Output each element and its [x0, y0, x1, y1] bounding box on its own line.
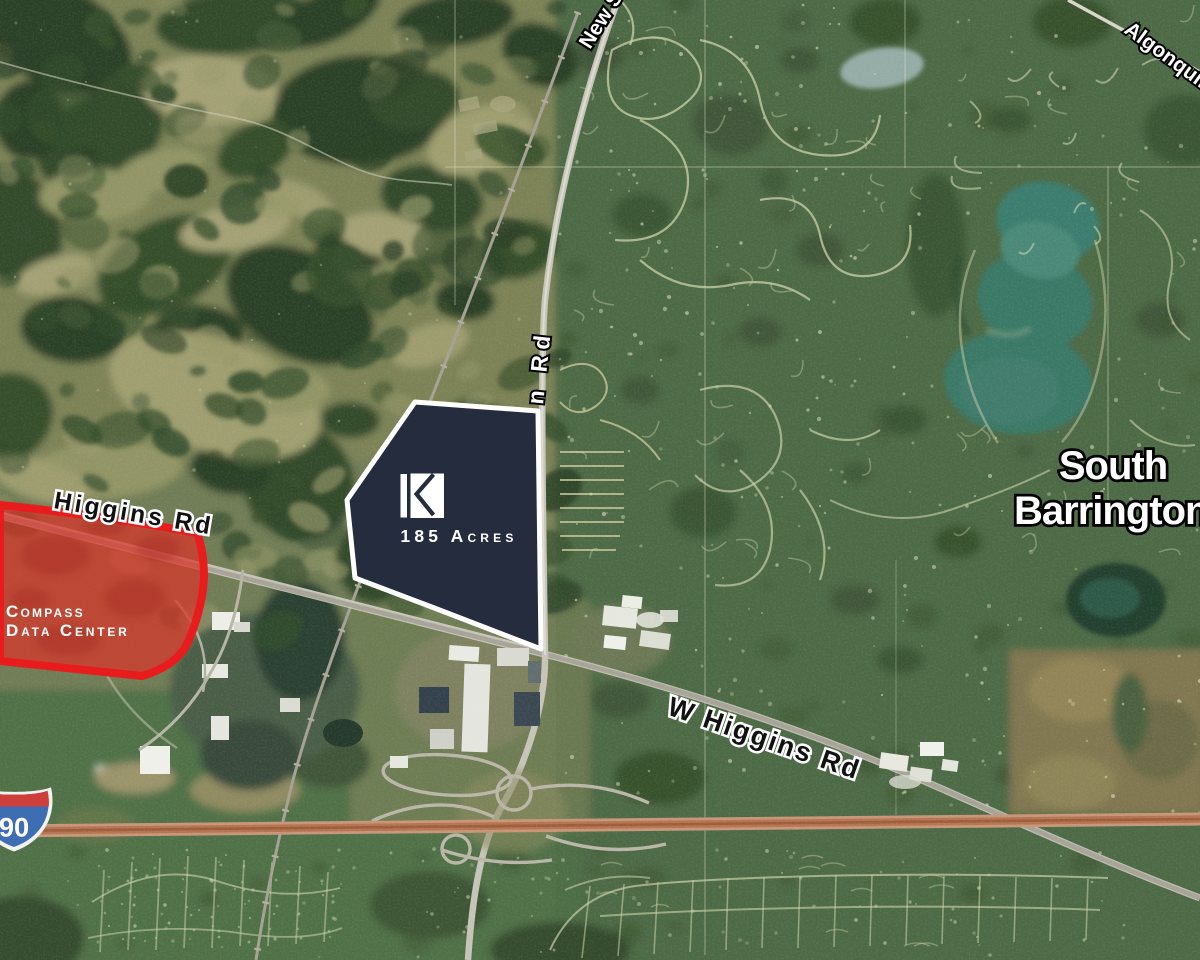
svg-text:185 Acres: 185 Acres [400, 526, 517, 546]
svg-text:Compass: Compass [6, 602, 85, 621]
svg-text:Barrington: Barrington [1014, 489, 1200, 533]
svg-text:South: South [1059, 444, 1167, 488]
svg-text:90: 90 [0, 811, 29, 842]
svg-text:Data Center: Data Center [6, 621, 130, 640]
